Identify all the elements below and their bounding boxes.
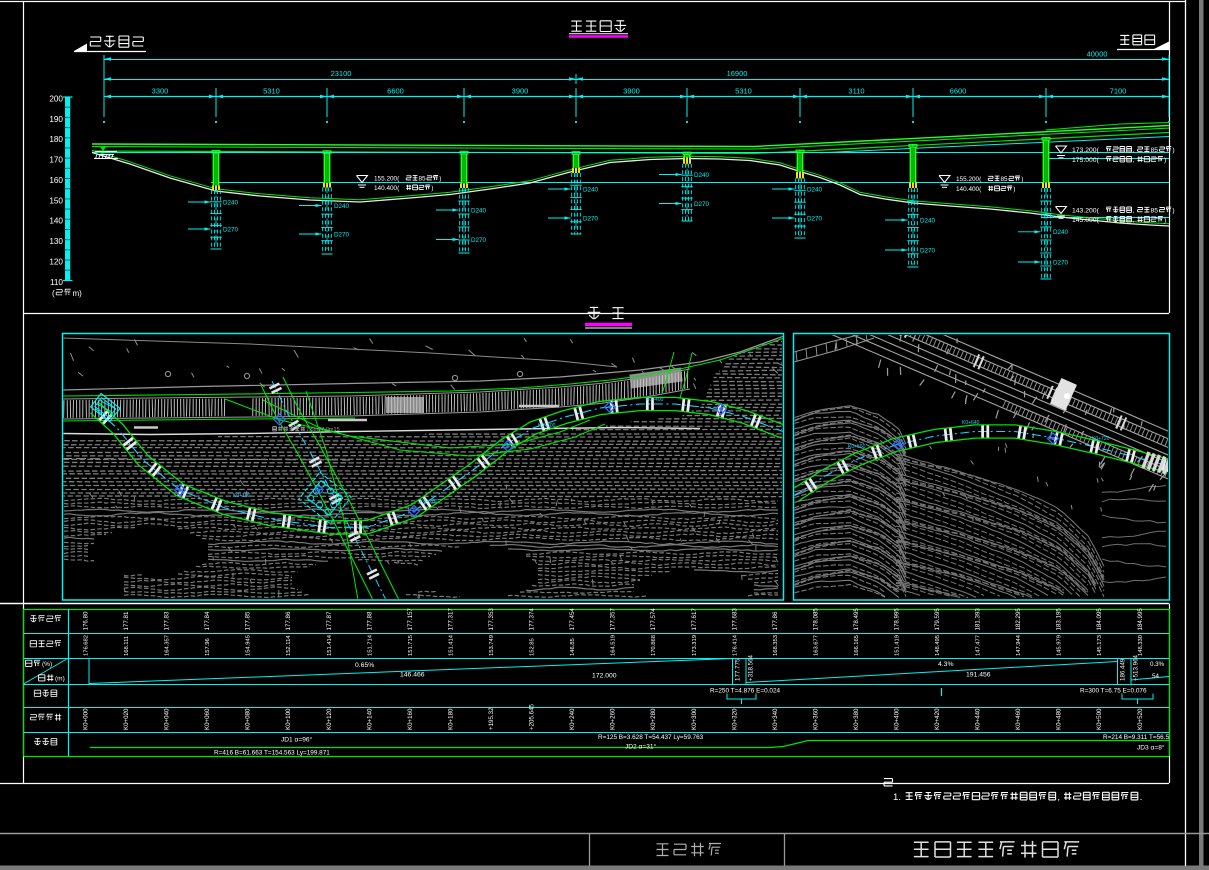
svg-text:85: 85 bbox=[1151, 147, 1159, 154]
svg-text:154.945: 154.945 bbox=[246, 635, 252, 656]
svg-text:145.000(: 145.000( bbox=[1072, 217, 1100, 224]
svg-text:148.495: 148.495 bbox=[935, 635, 941, 656]
svg-text:D270: D270 bbox=[334, 231, 350, 238]
svg-text:163.677: 163.677 bbox=[813, 635, 819, 656]
svg-text:R=125 B=3.628 T=54.437 Ly=59.7: R=125 B=3.628 T=54.437 Ly=59.763 bbox=[598, 734, 704, 741]
svg-text:7100: 7100 bbox=[1110, 87, 1127, 96]
svg-text:164.357: 164.357 bbox=[165, 635, 171, 656]
svg-text:0.3%: 0.3% bbox=[1150, 661, 1165, 668]
svg-text:155.200(: 155.200( bbox=[374, 176, 400, 183]
svg-text:7.5m27.0m15: 7.5m27.0m15 bbox=[306, 427, 340, 433]
svg-text:): ) bbox=[1172, 147, 1174, 154]
svg-text:K0+160: K0+160 bbox=[407, 708, 414, 730]
svg-text:177.88: 177.88 bbox=[366, 611, 373, 630]
svg-text:179.595: 179.595 bbox=[934, 608, 941, 631]
svg-text:177.683: 177.683 bbox=[731, 608, 738, 631]
svg-text:K0+300: K0+300 bbox=[538, 423, 556, 429]
svg-text:1.: 1. bbox=[893, 792, 901, 803]
svg-text:178.085: 178.085 bbox=[812, 608, 819, 631]
svg-text:R=300 T=6.75 E=0.076: R=300 T=6.75 E=0.076 bbox=[1080, 688, 1147, 695]
svg-text:177.86: 177.86 bbox=[772, 611, 779, 630]
svg-text:+205.645: +205.645 bbox=[529, 703, 536, 730]
svg-text:183.195: 183.195 bbox=[1056, 608, 1063, 631]
svg-text:177.775: 177.775 bbox=[735, 658, 742, 681]
svg-text:151.414: 151.414 bbox=[327, 634, 333, 656]
svg-text:D240: D240 bbox=[471, 207, 487, 214]
svg-text:177.317: 177.317 bbox=[447, 608, 454, 631]
svg-text:178.495: 178.495 bbox=[853, 608, 860, 631]
svg-text:177.617: 177.617 bbox=[691, 608, 698, 631]
svg-text:85: 85 bbox=[1151, 208, 1159, 215]
svg-text:146.466: 146.466 bbox=[400, 672, 425, 679]
svg-text:K0+180: K0+180 bbox=[447, 708, 454, 730]
svg-text:K0+520: K0+520 bbox=[1137, 708, 1144, 730]
svg-text:,: , bbox=[1133, 208, 1135, 215]
svg-text:K0+020: K0+020 bbox=[123, 708, 130, 730]
svg-text:23100: 23100 bbox=[331, 69, 352, 78]
svg-text:143.200(: 143.200( bbox=[1072, 208, 1100, 215]
svg-text:16900: 16900 bbox=[727, 69, 748, 78]
svg-text:173.319: 173.319 bbox=[692, 635, 698, 656]
svg-text:JD1 α=96°: JD1 α=96° bbox=[281, 736, 313, 744]
svg-text:D240: D240 bbox=[694, 172, 710, 179]
svg-text:K0+460: K0+460 bbox=[1015, 708, 1022, 730]
svg-text:JD3 α=8°: JD3 α=8° bbox=[1137, 744, 1165, 752]
svg-text:K0+560: K0+560 bbox=[848, 444, 866, 450]
svg-text:D270: D270 bbox=[920, 247, 936, 254]
svg-text:+513.964: +513.964 bbox=[1133, 654, 1140, 681]
svg-text:177.574: 177.574 bbox=[650, 608, 657, 631]
svg-text:145.173: 145.173 bbox=[1097, 635, 1103, 656]
svg-text:+195.32: +195.32 bbox=[488, 707, 495, 730]
svg-text:151.414: 151.414 bbox=[448, 634, 454, 656]
svg-text:K0+060: K0+060 bbox=[204, 708, 211, 730]
svg-text:D270: D270 bbox=[583, 215, 599, 222]
svg-text:(: ( bbox=[52, 289, 55, 298]
svg-text:K0+720: K0+720 bbox=[1092, 436, 1110, 442]
svg-text:K0+200: K0+200 bbox=[420, 499, 438, 505]
svg-text:D240: D240 bbox=[1053, 229, 1069, 236]
svg-text:D240: D240 bbox=[334, 203, 350, 210]
svg-text:176.682: 176.682 bbox=[84, 635, 90, 656]
svg-text:182.295: 182.295 bbox=[1015, 608, 1022, 631]
svg-text:,: , bbox=[1057, 792, 1060, 803]
svg-text:D270: D270 bbox=[807, 215, 823, 222]
svg-text:176.80: 176.80 bbox=[83, 611, 90, 630]
svg-text:177.86: 177.86 bbox=[285, 611, 292, 630]
svg-text:6600: 6600 bbox=[387, 87, 404, 96]
svg-text:151.715: 151.715 bbox=[408, 635, 414, 656]
svg-text:177.81: 177.81 bbox=[123, 611, 130, 630]
svg-text:R=416 B=61.663 T=154.563 Ly=19: R=416 B=61.663 T=154.563 Ly=199.871 bbox=[214, 750, 330, 757]
svg-text:): ) bbox=[1164, 217, 1166, 224]
svg-text:176.414: 176.414 bbox=[732, 634, 738, 656]
svg-text:200: 200 bbox=[49, 95, 63, 104]
svg-text:170.868: 170.868 bbox=[651, 635, 657, 656]
svg-text:): ) bbox=[1172, 208, 1174, 215]
svg-text:173.200(: 173.200( bbox=[1072, 147, 1100, 154]
svg-text:190: 190 bbox=[49, 115, 63, 124]
svg-text:164.519: 164.519 bbox=[611, 635, 617, 656]
svg-text:85: 85 bbox=[419, 176, 427, 183]
svg-text:4.3%: 4.3% bbox=[938, 661, 954, 668]
svg-text:D270: D270 bbox=[1053, 259, 1069, 266]
svg-text:180: 180 bbox=[49, 135, 63, 144]
svg-text:): ) bbox=[1021, 176, 1023, 183]
svg-text:JD2 α=31°: JD2 α=31° bbox=[625, 743, 657, 751]
svg-text:177.157: 177.157 bbox=[407, 608, 414, 631]
svg-text:170: 170 bbox=[49, 156, 63, 165]
svg-text:157.96: 157.96 bbox=[205, 638, 211, 656]
svg-text:168.353: 168.353 bbox=[773, 635, 779, 656]
svg-text:K0+100: K0+100 bbox=[233, 493, 251, 499]
svg-text:,: , bbox=[1133, 147, 1135, 154]
svg-text:R=250 T=4.876 E=0.024: R=250 T=4.876 E=0.024 bbox=[710, 688, 781, 695]
svg-text:): ) bbox=[1164, 157, 1166, 164]
svg-text:186.449: 186.449 bbox=[1120, 658, 1127, 681]
svg-text:120: 120 bbox=[49, 258, 63, 267]
svg-text:R=214 B=9.311 T=56.5: R=214 B=9.311 T=56.5 bbox=[1103, 734, 1169, 741]
svg-text:,: , bbox=[1133, 157, 1135, 164]
svg-text:K0+380: K0+380 bbox=[853, 708, 860, 730]
svg-text:D270: D270 bbox=[223, 226, 239, 233]
svg-text:.: . bbox=[1140, 792, 1143, 803]
svg-text:3110: 3110 bbox=[848, 87, 864, 96]
svg-text:D240: D240 bbox=[223, 199, 239, 206]
svg-text:5310: 5310 bbox=[735, 87, 752, 96]
svg-text:K0+140: K0+140 bbox=[366, 708, 373, 730]
svg-text:152.85: 152.85 bbox=[530, 638, 536, 656]
svg-text:54: 54 bbox=[1152, 673, 1159, 680]
svg-text:85: 85 bbox=[1001, 176, 1009, 183]
svg-text:K0+500: K0+500 bbox=[1096, 708, 1103, 730]
svg-text:K0+080: K0+080 bbox=[245, 708, 252, 730]
svg-text:5310: 5310 bbox=[263, 87, 280, 96]
svg-text:): ) bbox=[1013, 186, 1015, 193]
svg-text:160: 160 bbox=[49, 176, 63, 185]
svg-text:D270: D270 bbox=[471, 237, 487, 244]
svg-text:,: , bbox=[1133, 217, 1135, 224]
svg-text:177.83: 177.83 bbox=[164, 611, 171, 630]
svg-text:K0+280: K0+280 bbox=[650, 708, 657, 730]
svg-text:177.85: 177.85 bbox=[245, 611, 252, 630]
svg-text:(%): (%) bbox=[42, 661, 52, 668]
svg-text:K0+440: K0+440 bbox=[975, 708, 982, 730]
svg-text:146.85: 146.85 bbox=[570, 638, 576, 656]
svg-text:K0+100: K0+100 bbox=[285, 708, 292, 730]
svg-text:153.749: 153.749 bbox=[489, 635, 495, 656]
svg-text:140: 140 bbox=[49, 217, 63, 226]
svg-text:172.000: 172.000 bbox=[592, 673, 617, 680]
svg-text:147.944: 147.944 bbox=[1016, 634, 1022, 656]
svg-text:K0+240: K0+240 bbox=[569, 708, 576, 730]
svg-text:K0+400: K0+400 bbox=[894, 708, 901, 730]
svg-text:184.095: 184.095 bbox=[1096, 608, 1103, 631]
svg-text:145.979: 145.979 bbox=[1057, 635, 1063, 656]
svg-text:3900: 3900 bbox=[623, 87, 640, 96]
svg-text:140.400(: 140.400( bbox=[956, 186, 982, 193]
svg-text:177.374: 177.374 bbox=[529, 608, 536, 631]
svg-text:191.456: 191.456 bbox=[966, 672, 991, 679]
svg-text:K0+300: K0+300 bbox=[691, 708, 698, 730]
svg-text:147.477: 147.477 bbox=[976, 635, 982, 656]
svg-text:152.114: 152.114 bbox=[286, 635, 292, 656]
svg-text:150: 150 bbox=[49, 196, 63, 205]
svg-text:177.353: 177.353 bbox=[488, 608, 495, 631]
svg-text:184.995: 184.995 bbox=[1137, 608, 1144, 631]
svg-text:K0+480: K0+480 bbox=[1056, 708, 1063, 730]
svg-text:181.393: 181.393 bbox=[975, 608, 982, 631]
svg-text:): ) bbox=[431, 185, 433, 192]
svg-text:0.65%: 0.65% bbox=[355, 662, 374, 669]
svg-text:D240: D240 bbox=[583, 186, 599, 193]
svg-text:K0+400: K0+400 bbox=[646, 397, 664, 403]
svg-text:K0+120: K0+120 bbox=[326, 708, 333, 730]
svg-text:178.995: 178.995 bbox=[894, 608, 901, 631]
svg-text:177.84: 177.84 bbox=[204, 611, 211, 630]
svg-text:): ) bbox=[439, 176, 441, 183]
svg-text:m): m) bbox=[73, 289, 83, 298]
svg-text:168.111: 168.111 bbox=[124, 636, 130, 656]
svg-text:110: 110 bbox=[50, 278, 63, 287]
svg-text:D240: D240 bbox=[920, 217, 936, 224]
svg-text:K0+000: K0+000 bbox=[83, 708, 90, 730]
svg-text:177.454: 177.454 bbox=[569, 608, 576, 631]
svg-text:K0+040: K0+040 bbox=[164, 708, 171, 730]
svg-text:6600: 6600 bbox=[950, 87, 967, 96]
svg-text:K0+260: K0+260 bbox=[610, 708, 617, 730]
svg-text:155.200(: 155.200( bbox=[956, 176, 982, 183]
svg-text:K0+340: K0+340 bbox=[772, 708, 779, 730]
svg-text:140.400(: 140.400( bbox=[374, 185, 400, 192]
svg-text:K0+360: K0+360 bbox=[812, 708, 819, 730]
svg-text:166.165: 166.165 bbox=[854, 635, 860, 656]
svg-text:175.000(: 175.000( bbox=[1072, 157, 1100, 164]
svg-text:3900: 3900 bbox=[512, 87, 529, 96]
svg-text:D270: D270 bbox=[694, 201, 710, 208]
svg-text:177.87: 177.87 bbox=[326, 611, 333, 630]
svg-text:3300: 3300 bbox=[152, 87, 169, 96]
svg-text:K0+420: K0+420 bbox=[934, 708, 941, 730]
svg-text:151.419: 151.419 bbox=[895, 635, 901, 656]
svg-text:K0+640: K0+640 bbox=[962, 420, 980, 426]
svg-text:148.330: 148.330 bbox=[1138, 635, 1144, 656]
svg-text:40000: 40000 bbox=[1087, 50, 1108, 59]
svg-text:130: 130 bbox=[49, 237, 63, 246]
svg-text:D240: D240 bbox=[807, 186, 823, 193]
svg-text:K0+320: K0+320 bbox=[731, 708, 738, 730]
svg-text:177.357: 177.357 bbox=[610, 608, 617, 631]
svg-text:+318.564: +318.564 bbox=[748, 654, 755, 681]
svg-text:(m): (m) bbox=[55, 676, 65, 683]
svg-text:151.714: 151.714 bbox=[367, 634, 373, 656]
